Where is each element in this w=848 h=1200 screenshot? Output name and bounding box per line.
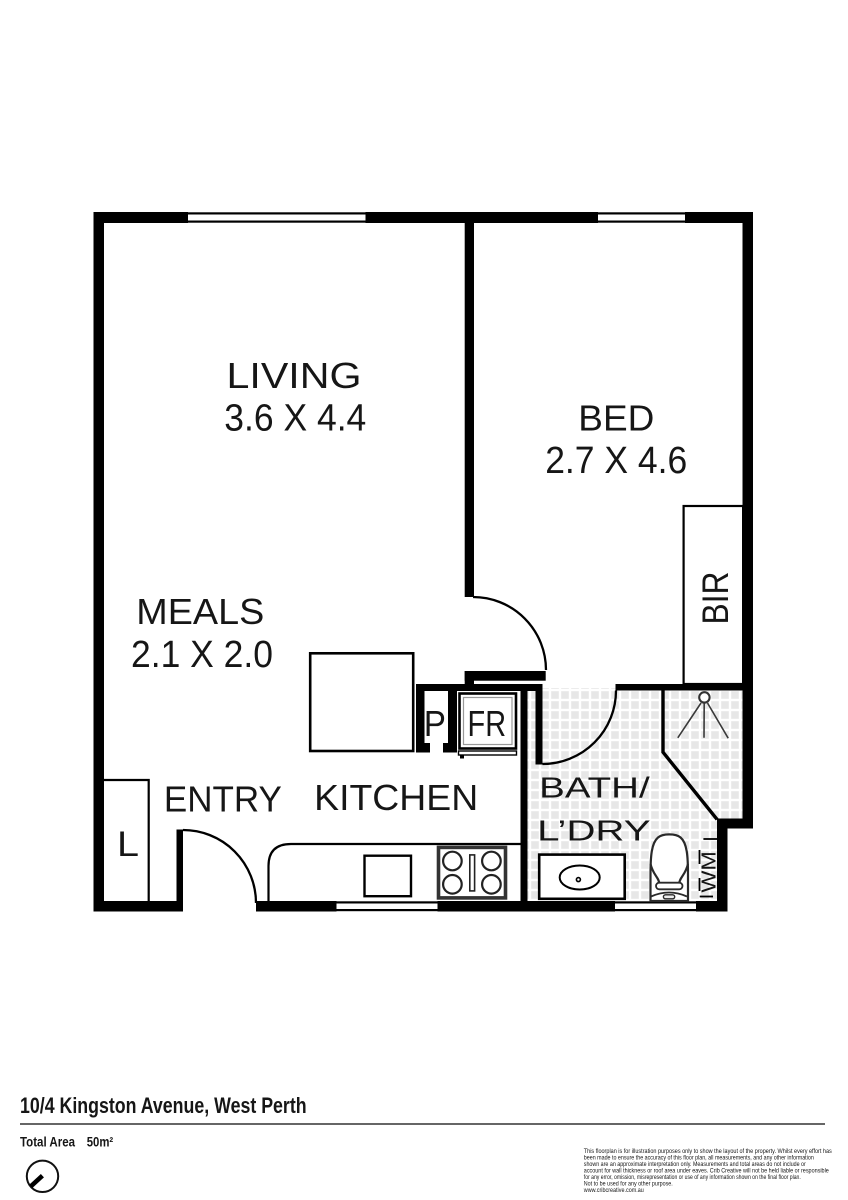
svg-text:2.7 X 4.6: 2.7 X 4.6 — [545, 440, 687, 482]
svg-text:WM: WM — [699, 851, 721, 893]
svg-text:MEALS: MEALS — [136, 591, 264, 632]
svg-text:LIVING: LIVING — [227, 355, 362, 396]
svg-text:FR: FR — [468, 703, 507, 744]
svg-text:3.6 X 4.4: 3.6 X 4.4 — [224, 397, 366, 439]
svg-text:P: P — [424, 703, 446, 744]
svg-text:www.cribcreative.com.au: www.cribcreative.com.au — [583, 1187, 644, 1194]
svg-text:2.1 X 2.0: 2.1 X 2.0 — [131, 634, 273, 676]
svg-text:KITCHEN: KITCHEN — [314, 777, 478, 818]
svg-text:L’DRY: L’DRY — [537, 815, 651, 847]
svg-text:BATH/: BATH/ — [539, 773, 650, 805]
svg-text:ENTRY: ENTRY — [164, 778, 282, 819]
svg-text:BIR: BIR — [695, 572, 736, 625]
svg-text:L: L — [117, 825, 139, 864]
svg-text:Total Area: Total Area — [20, 1134, 75, 1150]
svg-text:10/4 Kingston Avenue, West Per: 10/4 Kingston Avenue, West Perth — [20, 1093, 307, 1118]
svg-text:BED: BED — [578, 397, 654, 438]
svg-text:50m²: 50m² — [87, 1134, 114, 1150]
